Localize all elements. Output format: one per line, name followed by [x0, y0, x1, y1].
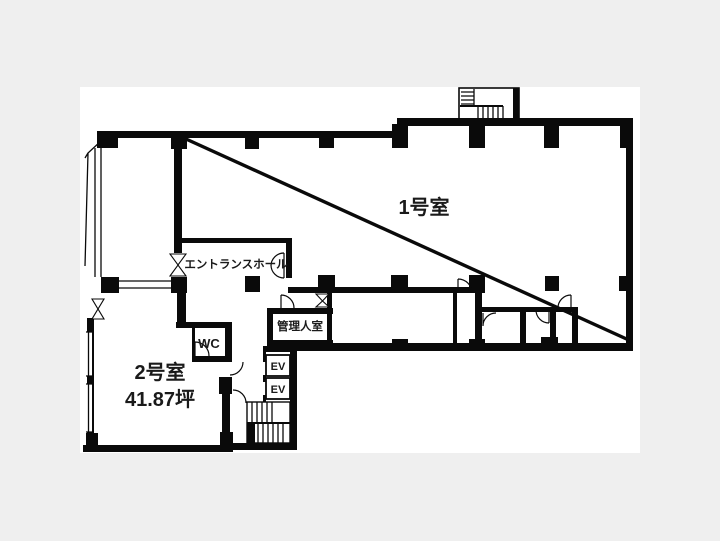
wall-smallroom-div3: [572, 307, 578, 345]
wall-top-right: [397, 118, 633, 126]
wall-corridor-top: [288, 287, 472, 293]
wall-manager-right: [327, 293, 332, 346]
wall-smallrooms-west: [475, 293, 482, 345]
floor-plan-image: EV EV 1号室 エントランスホール 管理人室 WC 2号室 41.87坪: [0, 0, 720, 541]
manager-room-label: 管理人室: [277, 319, 323, 333]
elevator-1-label: EV: [271, 361, 286, 373]
room1-label: 1号室: [398, 195, 449, 219]
elevator-2-label: EV: [271, 384, 286, 396]
entrance-hall-label: エントランスホール: [184, 258, 288, 271]
wall-entrance-right: [286, 238, 292, 278]
wc-label: WC: [198, 336, 220, 351]
window-room2-left-2: [86, 384, 92, 432]
wall-wc-bottom: [192, 356, 232, 362]
room2-area-label: 41.87坪: [125, 388, 195, 411]
wall-core-bottom: [228, 443, 297, 450]
wall-manager-top: [267, 308, 333, 314]
wall-core-right: [290, 343, 297, 450]
wall-ev-top: [263, 346, 293, 352]
room2-label: 2号室: [134, 360, 185, 384]
stairs-main: [247, 402, 290, 443]
wall-closet-thin: [453, 293, 457, 345]
window-room2-left-1: [86, 332, 92, 376]
wall-bottom-right-section: [293, 343, 633, 351]
floor-plan-page: EV EV 1号室 エントランスホール 管理人室 WC 2号室 41.87坪: [0, 0, 720, 541]
wall-wc-west: [177, 290, 186, 324]
stairs-top: [459, 88, 519, 120]
wall-smallroom-div1: [520, 312, 526, 345]
wall-upper-left-room: [174, 138, 182, 253]
wall-right: [626, 118, 633, 350]
wall-wc-top: [176, 322, 232, 328]
wall-room2-bottom: [83, 445, 233, 452]
wall-entrance-top: [178, 238, 292, 243]
wall-top-left: [97, 131, 400, 138]
wall-manager-bottom: [267, 340, 333, 346]
